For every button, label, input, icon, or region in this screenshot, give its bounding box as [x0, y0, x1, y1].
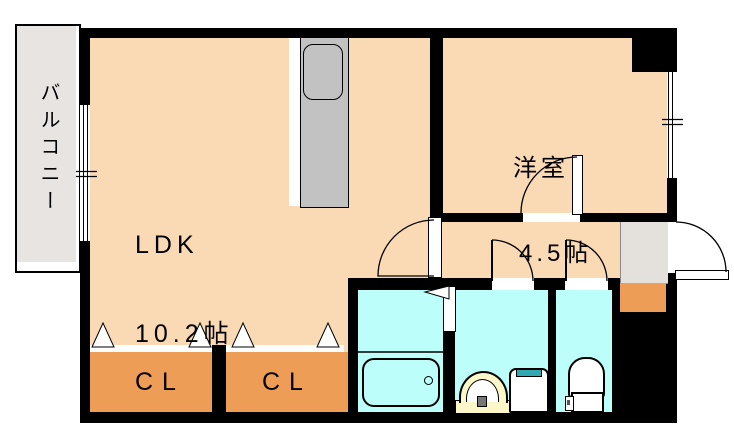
window-western-east	[667, 72, 677, 178]
window-ldk-west	[80, 105, 90, 241]
genkan-step	[620, 283, 666, 312]
western-room-size: 4.5帖	[513, 240, 592, 268]
kitchen-counter-edge	[289, 38, 300, 206]
kitchen-sink-icon	[303, 44, 343, 100]
western-room-name: 洋室	[513, 155, 592, 183]
toilet-control-dot	[567, 400, 570, 405]
door-arc-entrance	[676, 222, 726, 272]
balcony: バルコニー	[15, 24, 81, 273]
wall-top	[80, 28, 677, 38]
ldk-label: LDK 10.2帖	[135, 172, 234, 408]
closet-right-label: CL	[262, 368, 312, 398]
doorway-entrance	[667, 222, 677, 273]
wall-ldk-western	[430, 38, 443, 213]
western-room-label: 洋室 4.5帖	[513, 98, 592, 325]
floorplan: バルコニー CL CL	[0, 0, 734, 433]
bathtub-drain-icon	[424, 376, 433, 385]
washing-machine-lid	[516, 369, 542, 377]
ldk-name: LDK	[135, 231, 234, 261]
toilet-tank	[571, 392, 604, 413]
ldk-size: 10.2帖	[135, 320, 234, 350]
door-leaf-entrance	[675, 270, 729, 280]
balcony-label: バルコニー	[34, 82, 63, 217]
closet-right-track	[226, 345, 344, 352]
washbasin-drain-icon	[477, 396, 487, 407]
door-leaf-ldk-hall	[428, 217, 442, 278]
genkan-area	[620, 222, 668, 284]
wall-bottom	[80, 412, 677, 423]
wall-bathroom-left	[348, 278, 358, 423]
pillar-top-right	[632, 38, 672, 72]
bathroom-folding-door	[443, 286, 456, 332]
